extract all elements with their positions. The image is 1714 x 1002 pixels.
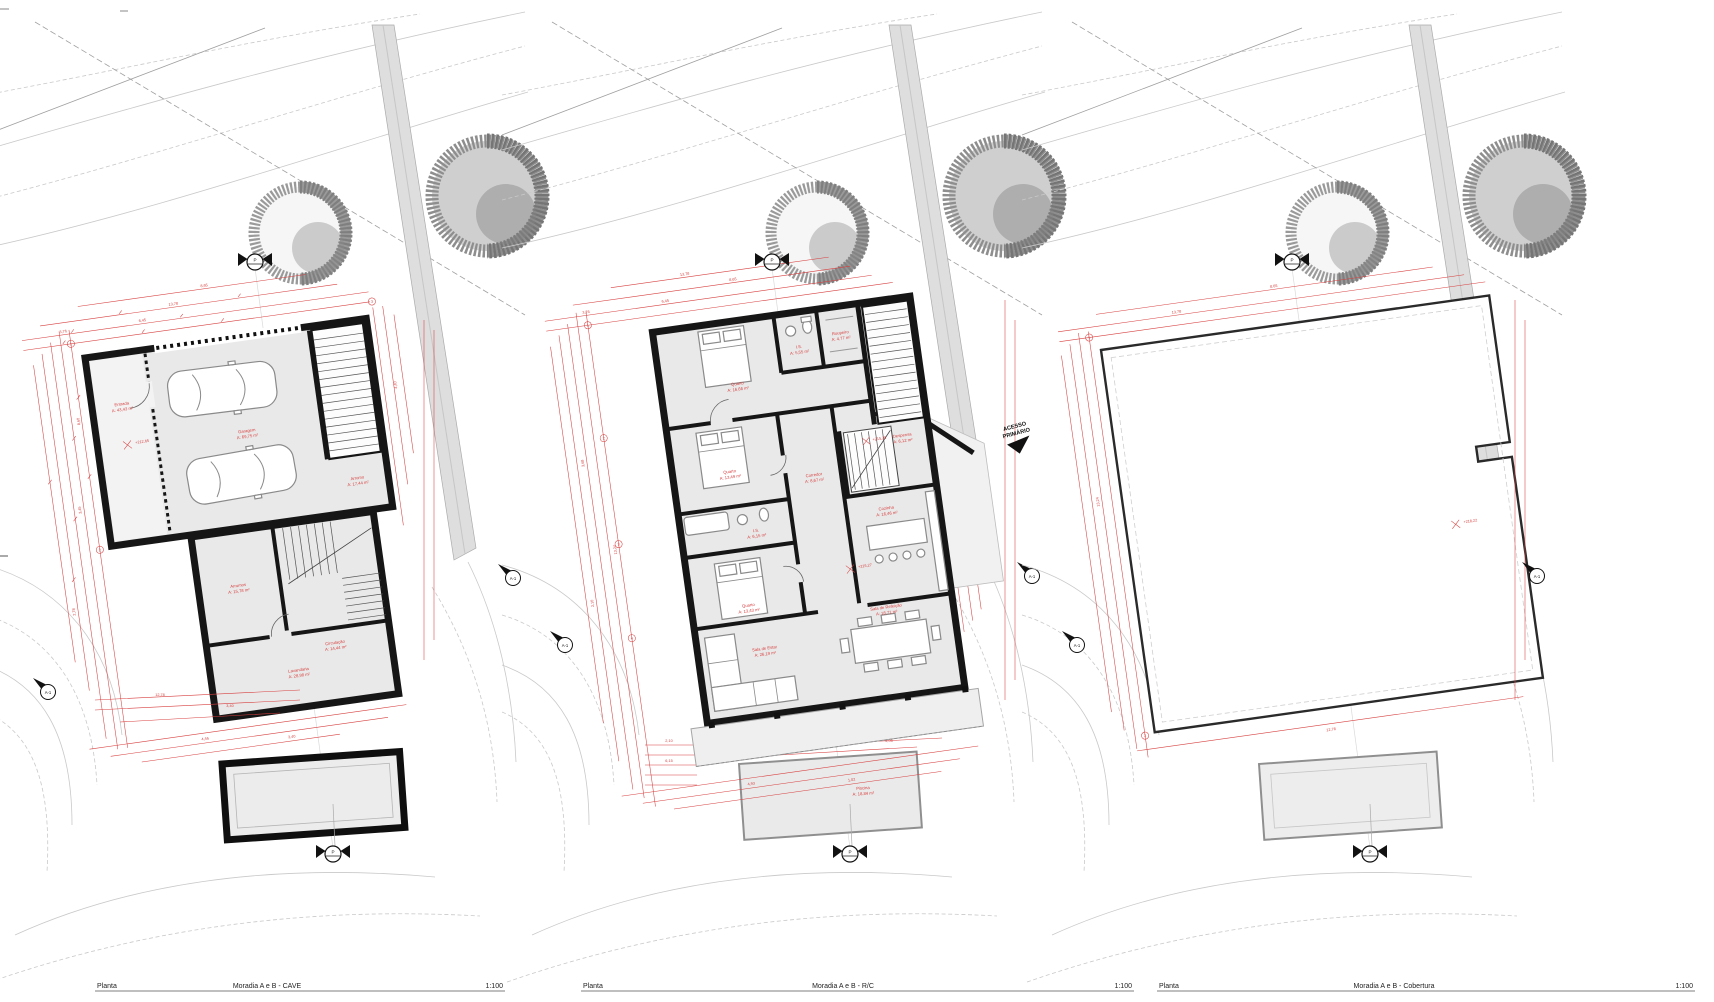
section-marker-label: A-1	[1074, 643, 1081, 648]
cut-marker-label: P	[1290, 258, 1293, 263]
lower-block-walls	[191, 511, 399, 719]
grid-bubble-label: 2	[1144, 734, 1147, 738]
dim-text: 4,46	[201, 736, 209, 741]
plan-sheet-svg: 3,45 2,78 8,60 3,76 6,45 8,65 13,78 4,40…	[0, 0, 1714, 1002]
grid-bubble-label: 1	[587, 324, 590, 328]
section-marker-label: A-1	[45, 690, 52, 695]
cut-marker-label: P	[331, 850, 334, 855]
dim-text: 3,45	[78, 506, 83, 514]
dim-text: 2,10	[590, 599, 595, 607]
footer-scale: 1:100	[1675, 983, 1693, 990]
dim-text: 8,60	[76, 418, 81, 426]
dim-text: 2,78	[72, 608, 77, 616]
dim-text: 13,78	[168, 302, 178, 307]
building-cave: 3,45 2,78 8,60 3,76 6,45 8,65 13,78 4,40…	[18, 258, 451, 770]
cut-marker-label: P	[253, 258, 256, 263]
dim-text: 3,76	[582, 310, 590, 315]
pool	[222, 752, 405, 840]
grid-bubble-label: 1	[70, 342, 73, 346]
grid-bubble-label: 4	[631, 636, 634, 640]
drawing-sheet: 3,45 2,78 8,60 3,76 6,45 8,65 13,78 4,40…	[0, 0, 1714, 1002]
dim-text: 3,68	[581, 459, 586, 467]
dim-text: 8,65	[200, 283, 208, 288]
cut-marker-label: P	[770, 258, 773, 263]
section-marker-label: A-1	[1534, 574, 1541, 579]
footer-scale: 1:100	[1114, 983, 1132, 990]
section-marker: A-1	[550, 631, 573, 653]
panel-cave: 3,45 2,78 8,60 3,76 6,45 8,65 13,78 4,40…	[0, 12, 542, 991]
grid-bubble-label: 1	[1088, 336, 1091, 340]
pool: PiscinaA: 18,84 m²	[739, 752, 922, 840]
footer-type: Planta	[1159, 983, 1179, 990]
acesso-primario-annotation: ACESSO PRIMÁRIO	[1000, 420, 1035, 456]
section-marker: A-1	[33, 678, 56, 700]
dim-text: 12,78	[1326, 727, 1336, 732]
section-marker-label: A-1	[562, 643, 569, 648]
footer-type: Planta	[97, 983, 117, 990]
footer-title: Moradia A e B - CAVE	[233, 983, 302, 990]
section-marker-label: A-1	[510, 576, 517, 581]
dim-text: 3,76	[59, 329, 67, 334]
grid-bubble-label: 2	[602, 436, 605, 440]
dim-text: 13,24	[1095, 497, 1100, 507]
section-marker: A-1	[1062, 631, 1085, 653]
footer-type: Planta	[583, 983, 603, 990]
footer-rc: Planta Moradia A e B - R/C 1:100	[581, 983, 1134, 991]
roof-outline	[1101, 295, 1543, 732]
dim-text: 3,40	[226, 704, 233, 708]
dim-text: 6,45	[138, 318, 146, 323]
dim-text: 8,65	[729, 277, 737, 282]
footer-cobertura: Planta Moradia A e B - Cobertura 1:100	[1157, 983, 1695, 991]
footer-title: Moradia A e B - Cobertura	[1354, 983, 1435, 990]
section-marker: A-1	[1017, 562, 1040, 584]
dim-text: 3,40	[288, 734, 296, 739]
grid-bubble-label: 3	[371, 300, 374, 304]
building-cobertura: 13,24 13,78 8,65 12,78 1 2 +218,22	[1056, 255, 1547, 762]
panel-rc: PiscinaA: 18,84 m² 4,93 1,02 5,05 2,10 6…	[502, 12, 1134, 991]
footer-cave: Planta Moradia A e B - CAVE 1:100	[95, 983, 505, 991]
stairs	[843, 426, 899, 492]
cut-marker-label: P	[1368, 850, 1371, 855]
grid-bubble-label: 3	[617, 542, 620, 546]
panel-cobertura: 13,24 13,78 8,65 12,78 1 2 +218,22	[1022, 12, 1695, 991]
cut-marker: P	[1353, 845, 1387, 862]
footer-title: Moradia A e B - R/C	[812, 983, 874, 990]
dim-text: 6,15	[665, 759, 672, 763]
grid-bubble-label: 2	[99, 548, 102, 552]
dim-text: 13,78	[1171, 309, 1181, 314]
dim-text: 4,40	[393, 381, 398, 389]
pool	[1259, 752, 1442, 840]
cut-marker: P	[316, 845, 350, 862]
dim-text: 13,78	[680, 272, 690, 277]
dim-text: 2,10	[665, 739, 672, 743]
footer-scale: 1:100	[485, 983, 503, 990]
acesso-arrow-icon	[1006, 436, 1033, 457]
dim-text: 8,65	[1270, 284, 1278, 289]
cut-marker: P	[833, 845, 867, 862]
dim-text: 6,45	[661, 299, 669, 304]
section-marker-label: A-1	[1029, 574, 1036, 579]
dim-text: 12,78	[155, 693, 165, 697]
cut-marker-label: P	[848, 850, 851, 855]
